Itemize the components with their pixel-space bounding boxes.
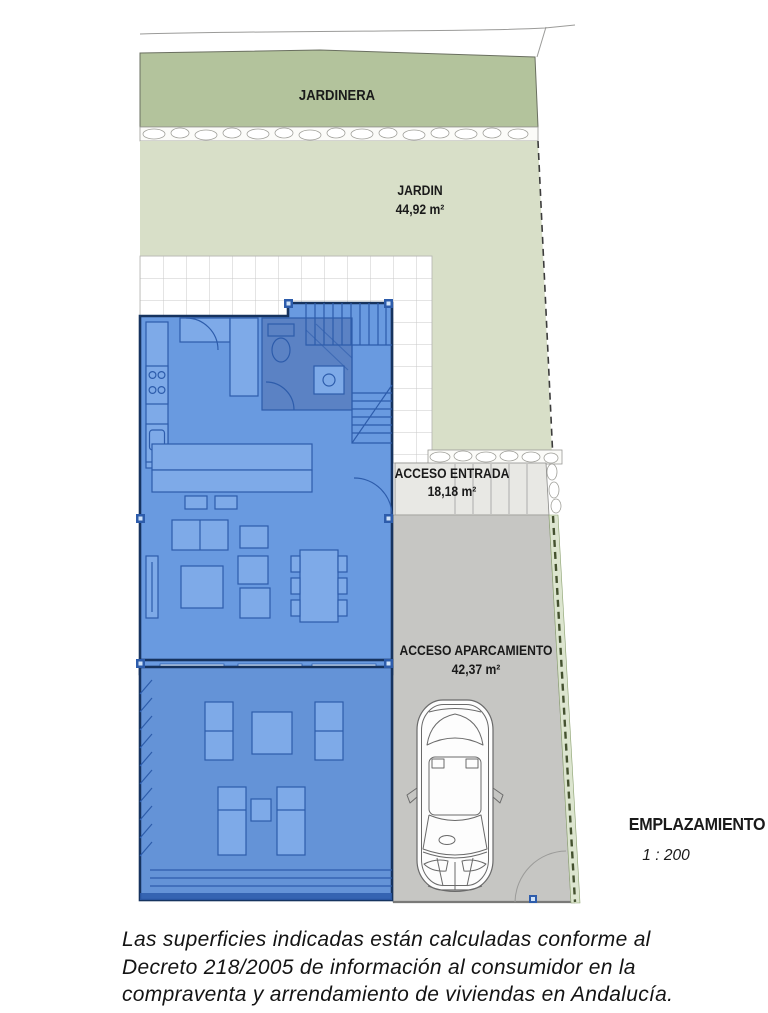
armchair — [240, 588, 270, 618]
terrace — [140, 667, 392, 900]
disclaimer-text: Las superficies indicadas están calculad… — [122, 926, 673, 1009]
parking-area-value: 42,37 m² — [399, 660, 552, 679]
terrace-table — [252, 712, 292, 754]
stool — [185, 496, 207, 509]
site-plan-page: JARDINERA JARDIN 44,92 m² ACCESO ENTRADA… — [0, 0, 768, 1013]
road-edge-line — [140, 25, 575, 34]
disclaimer-line-1: Las superficies indicadas están calculad… — [122, 926, 673, 954]
disclaimer-line-3: compraventa y arrendamiento de viviendas… — [122, 981, 673, 1009]
armchair — [238, 556, 268, 584]
car-topview — [407, 700, 503, 892]
jardin-label: JARDIN 44,92 m² — [396, 181, 445, 219]
house-floorplan — [140, 303, 392, 674]
jardin-name: JARDIN — [396, 181, 445, 200]
stove — [146, 366, 168, 404]
coffee-table — [181, 566, 223, 608]
plot-corner-line — [537, 27, 546, 57]
dining-table — [300, 550, 338, 622]
parking-name: ACCESO APARCAMIENTO — [399, 641, 552, 660]
kitchen-island — [152, 444, 312, 470]
gravel-border — [140, 127, 538, 141]
lounger-side-table — [251, 799, 271, 821]
side-table — [240, 526, 268, 548]
bath-sink — [314, 366, 344, 394]
bathroom — [262, 318, 352, 410]
jardinera-label: JARDINERA — [299, 88, 375, 104]
sun-lounger — [218, 787, 246, 855]
entrance-area-value: 18,18 m² — [395, 483, 510, 501]
plan-title: EMPLAZAMIENTO — [629, 814, 766, 835]
sun-lounger — [277, 787, 305, 855]
plan-scale: 1 : 200 — [642, 847, 689, 865]
disclaimer-line-2: Decreto 218/2005 de información al consu… — [122, 954, 673, 982]
entrance-label: ACCESO ENTRADA 18,18 m² — [395, 465, 510, 501]
parking-label: ACCESO APARCAMIENTO 42,37 m² — [399, 641, 552, 679]
stool — [215, 496, 237, 509]
entrance-name: ACCESO ENTRADA — [395, 465, 510, 483]
jardin-area-value: 44,92 m² — [396, 200, 445, 219]
